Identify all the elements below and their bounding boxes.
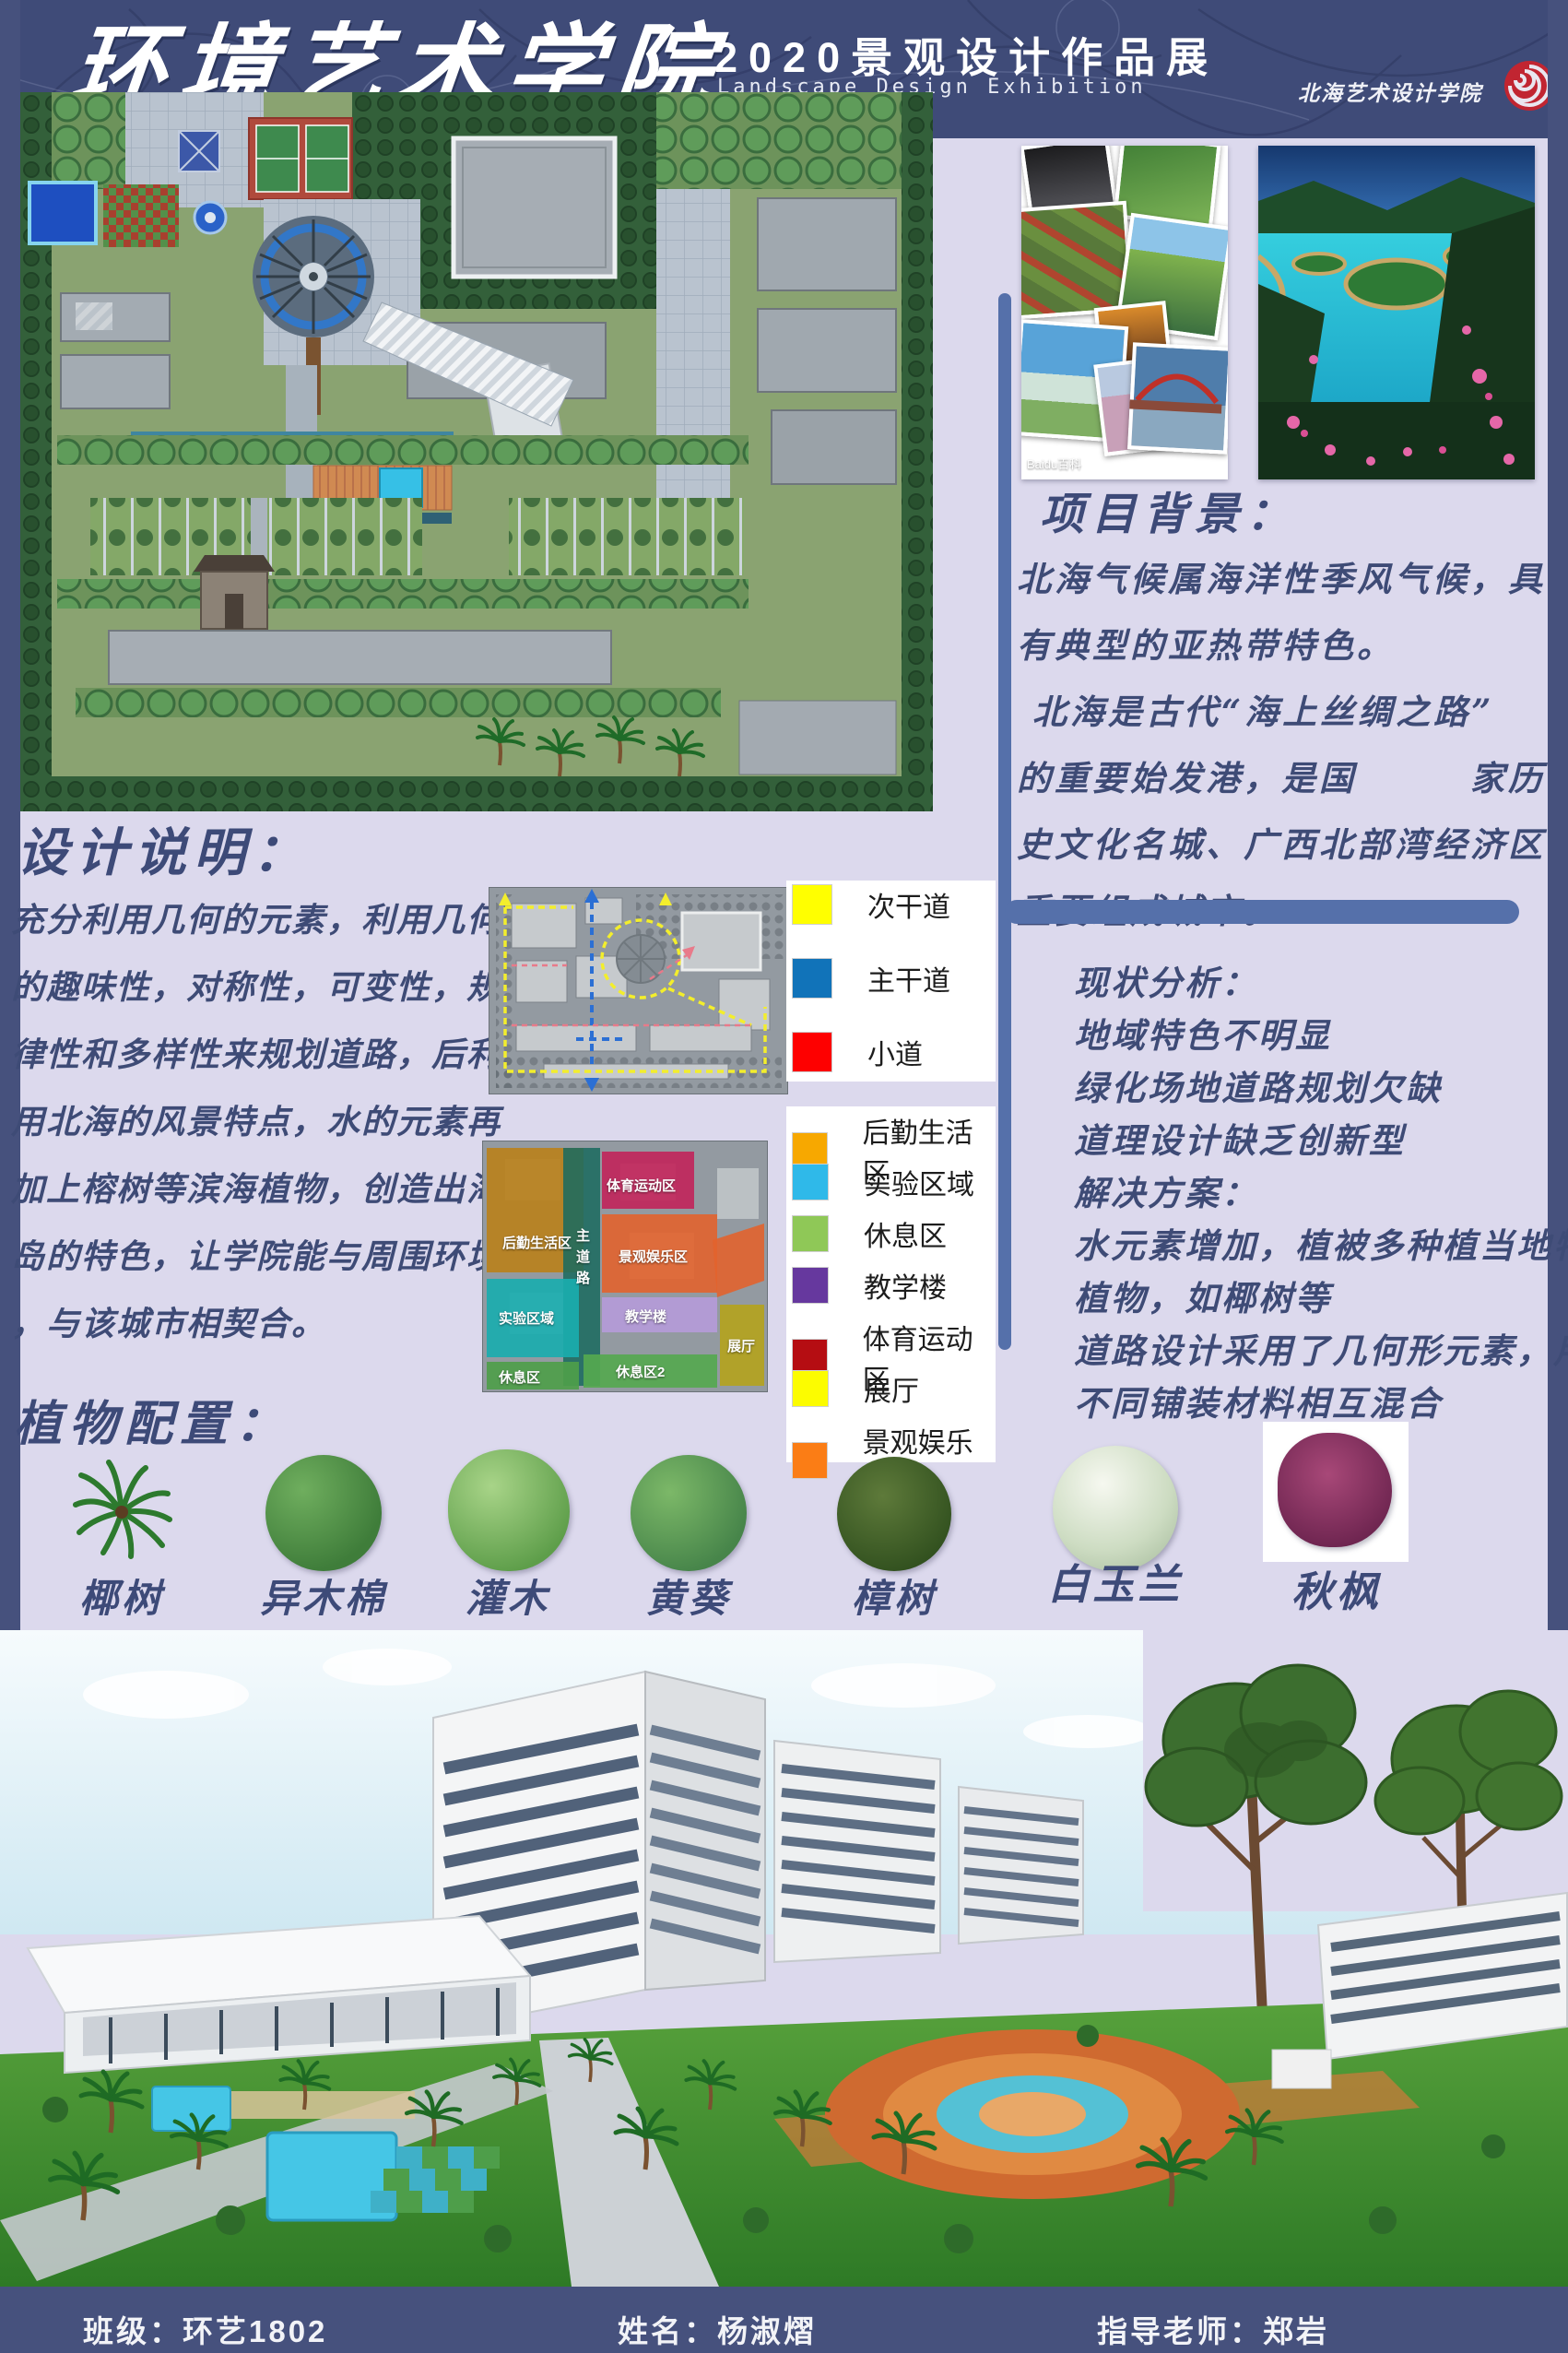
zone-label: 体育运动区: [607, 1176, 676, 1195]
collage-watermark: Baidu百科: [1027, 455, 1081, 472]
zone-color-swatch: [792, 1267, 829, 1304]
vertical-divider-bar: [998, 293, 1011, 1350]
zone-label: 休息区: [499, 1367, 540, 1387]
legend-label: 主干道: [867, 958, 950, 999]
legend-row: 主干道: [786, 958, 996, 999]
text-line: 现状分析：: [1074, 957, 1568, 1010]
zone-label: 后勤生活区: [502, 1233, 572, 1252]
plant-thumb-silk-floss: [265, 1455, 382, 1571]
plant-thumb-shrub: [448, 1449, 570, 1571]
text-line: 地域特色不明显: [1074, 1010, 1568, 1062]
design-notes-text: 充分利用几何的元素，利用几何 的趣味性，对称性，可变性，规 律性和多样性来规划道…: [11, 887, 501, 1358]
zone-color-swatch: [792, 1215, 829, 1252]
text-line: 的趣味性，对称性，可变性，规: [11, 954, 501, 1022]
text-line: 有典型的亚热带特色。: [1017, 612, 1546, 679]
text-line: 律性和多样性来规划道路，后利: [11, 1022, 501, 1089]
legend-row: 实验区域: [786, 1162, 996, 1202]
plant-thumb-camphor: [837, 1457, 951, 1571]
project-background-text: 北海气候属海洋性季风气候，具 有典型的亚热带特色。 北海是古代“海上丝绸之路” …: [1017, 546, 1546, 944]
road-color-swatch: [792, 884, 832, 925]
text-line: 充分利用几何的元素，利用几何: [11, 887, 501, 954]
road-color-swatch: [792, 1032, 832, 1072]
text-line: 用北海的风景特点，水的元素再: [11, 1089, 501, 1156]
text-line: 水元素增加，植被多种植当地特: [1074, 1220, 1568, 1272]
footer-teacher: 指导老师：郑岩: [1097, 2307, 1329, 2351]
road-analysis-map: [489, 887, 788, 1094]
zone-label: 主道路: [572, 1228, 592, 1292]
text-line: 道路设计采用了几何形元素，用: [1074, 1325, 1568, 1378]
legend-label: 实验区域: [864, 1162, 974, 1202]
zone-color-swatch: [792, 1442, 828, 1479]
lake-scenery-photo: [1258, 146, 1535, 479]
master-site-plan: [20, 92, 933, 811]
legend-row: 休息区: [786, 1213, 996, 1254]
zoning-analysis-map: 后勤生活区 主道路 体育运动区 景观娱乐区 实验区域 教学楼 休息区 休息区2 …: [482, 1141, 768, 1392]
text-line: 史文化名城、广西北部湾经济区: [1017, 811, 1546, 878]
legend-label: 小道: [867, 1032, 923, 1072]
campus-perspective-render: [0, 1630, 1568, 2287]
plant-label: 秋枫: [1291, 1558, 1382, 1618]
legend-label: 休息区: [864, 1213, 947, 1254]
road-color-swatch: [792, 958, 832, 999]
text-line: 北海是古代“海上丝绸之路”: [1017, 679, 1546, 745]
site-analysis-text: 现状分析： 地域特色不明显 绿化场地道路规划欠缺 道理设计缺乏创新型 解决方案：…: [1074, 957, 1568, 1430]
footer-class: 班级：环艺1802: [83, 2307, 327, 2351]
legend-label: 展厅: [864, 1368, 919, 1409]
legend-row: 小道: [786, 1032, 996, 1072]
horizontal-divider-bar: [1005, 900, 1519, 924]
plant-label: 樟树: [852, 1567, 937, 1624]
bridge-arc: [1127, 342, 1225, 446]
collage-photo-city-aerial: [1021, 201, 1134, 319]
zone-label: 展厅: [727, 1336, 755, 1355]
road-legend: 次干道 主干道 小道: [786, 881, 996, 1082]
plant-thumb-autumn-maple: [1278, 1433, 1392, 1547]
plant-label: 白玉兰: [1047, 1551, 1183, 1611]
plants-heading: 植物配置：: [14, 1385, 290, 1454]
text-line: 岛的特色，让学院能与周围环境: [11, 1224, 501, 1291]
legend-label: 次干道: [867, 884, 950, 925]
legend-row: 教学楼: [786, 1265, 996, 1306]
zone-label: 景观娱乐区: [619, 1247, 688, 1266]
text-line: 北海气候属海洋性季风气候，具: [1017, 546, 1546, 612]
legend-row: 展厅: [786, 1368, 996, 1409]
zone-label: 休息区2: [616, 1362, 665, 1381]
zone-color-swatch: [792, 1370, 829, 1407]
school-logo-text: 北海艺术设计学院: [1298, 76, 1482, 107]
legend-label: 教学楼: [864, 1265, 947, 1306]
design-notes-heading: 设计说明：: [17, 811, 312, 886]
text-line: 植物，如椰树等: [1074, 1272, 1568, 1325]
beihai-photo-collage: Baidu百科: [1021, 146, 1228, 479]
plant-label: 黄葵: [646, 1567, 731, 1624]
zone-label: 实验区域: [499, 1308, 554, 1328]
project-background-heading: 项目背景：: [1040, 478, 1298, 542]
text-line: 的重要始发港，是国 家历: [1017, 745, 1546, 811]
zone-label: 教学楼: [625, 1307, 666, 1326]
zone-legend: 后勤生活区 实验区域 休息区 教学楼 体育运动区 展厅 景观娱乐区: [786, 1106, 996, 1462]
zone-color-swatch: [792, 1164, 829, 1200]
text-line: 道理设计缺乏创新型: [1074, 1115, 1568, 1167]
plant-label: 椰树: [79, 1567, 164, 1624]
plant-thumb-hibiscus: [631, 1455, 747, 1571]
plant-label: 灌木: [466, 1567, 550, 1624]
legend-row: 次干道: [786, 884, 996, 925]
text-line: 加上榕树等滨海植物，创造出海: [11, 1156, 501, 1224]
plant-thumb-autumn-maple-box: [1263, 1422, 1409, 1562]
collage-photo-cliff: [1113, 146, 1220, 228]
plant-thumb-coconut: [66, 1457, 177, 1567]
plant-label: 异木棉: [260, 1567, 387, 1624]
text-line: 解决方案：: [1074, 1167, 1568, 1220]
poster-root: 环境艺术学院 2020景观设计作品展 Landscape Design Exhi…: [0, 0, 1568, 2353]
text-line: ，与该城市相契合。: [11, 1291, 501, 1358]
footer-name: 姓名：杨淑熠: [618, 2307, 817, 2351]
text-line: 绿化场地道路规划欠缺: [1074, 1062, 1568, 1115]
